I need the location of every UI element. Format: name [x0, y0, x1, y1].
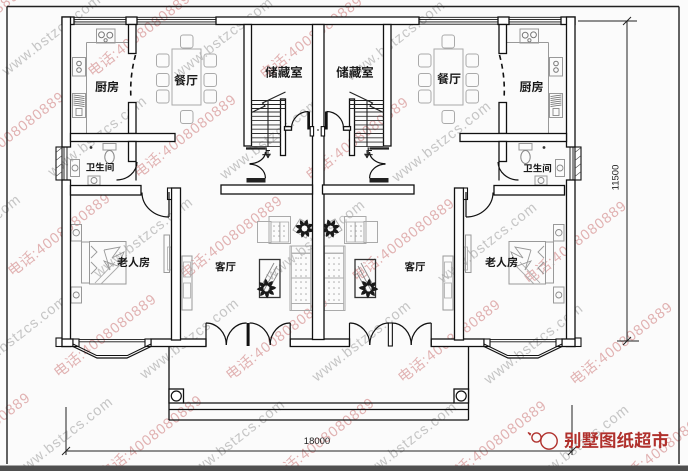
svg-text:11500: 11500	[611, 165, 622, 191]
svg-text:18000: 18000	[304, 436, 330, 447]
